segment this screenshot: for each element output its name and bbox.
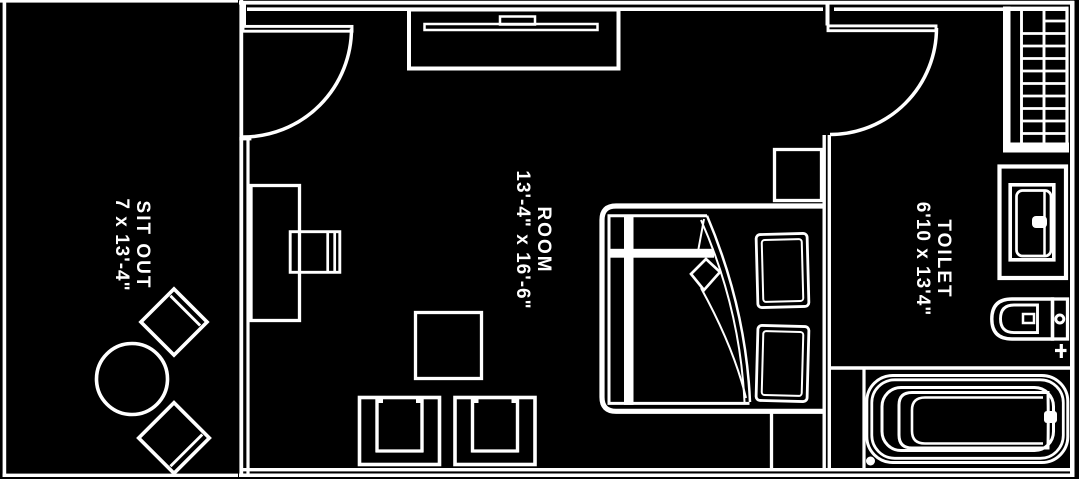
svg-text:6'10 x 13'4": 6'10 x 13'4" <box>912 202 933 317</box>
svg-text:7 x 13'-4": 7 x 13'-4" <box>111 198 132 291</box>
svg-text:TOILET: TOILET <box>933 219 954 298</box>
svg-text:SIT OUT: SIT OUT <box>132 201 153 290</box>
svg-text:13'-4" x 16'-6": 13'-4" x 16'-6" <box>512 170 533 309</box>
svg-text:ROOM: ROOM <box>533 206 554 273</box>
